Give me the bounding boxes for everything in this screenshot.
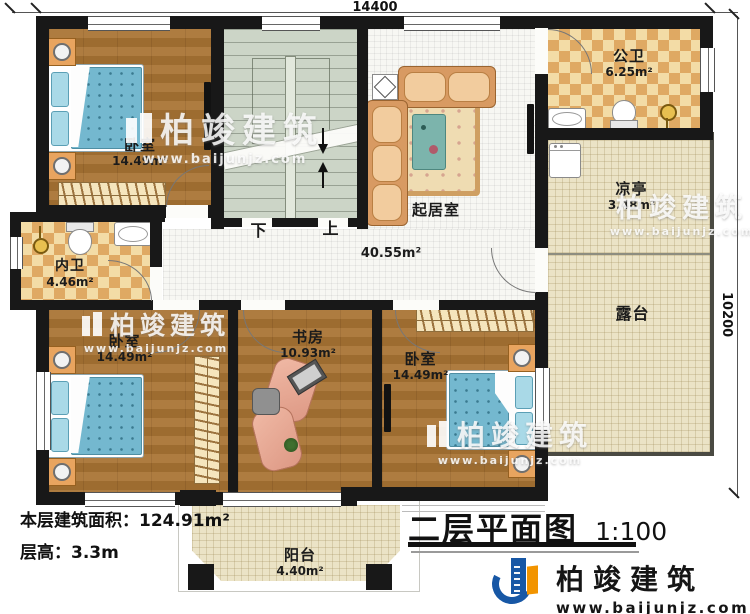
room-name: 卧室 [90,136,190,154]
wall [211,16,224,229]
balcony-pillar [180,490,216,506]
balcony-pillar [188,564,214,590]
brand-logo-icon [492,556,544,608]
room-name: 卧室 [72,332,177,350]
washer-panel [550,150,580,151]
floor-plan: 卧室 14.49m² 内卫 4.46m² 卧室 14.49m² 书房 10.93… [0,0,750,614]
room-label-pavilion: 凉亭 3.48m² [584,180,679,212]
wall [36,300,535,310]
bed [46,374,144,458]
dimension-tick [728,8,739,19]
room-label-balcony: 阳台 4.40m² [245,546,355,578]
sink-basin [118,226,148,242]
pillow [515,376,533,409]
nightstand [508,450,536,478]
hallway [163,229,535,300]
plant [284,438,298,452]
sink-basin [552,112,582,126]
door-opening [535,248,548,292]
room-name: 内卫 [28,258,112,275]
window [85,492,175,507]
room-area: 4.40m² [245,564,355,578]
room-area-living: 40.55m² [352,246,430,262]
stair-label-up: 上 [318,219,344,238]
floor-height-label: 层高： [20,543,71,563]
sofa-cushion [372,145,402,182]
balcony-pillar [341,490,357,506]
table-flowers [429,145,438,154]
pillow [51,381,69,415]
dimension-line-right [737,16,738,498]
wall [228,300,238,492]
shower-head [660,104,677,121]
floor-area-value: 124.91m² [139,511,230,531]
wall [535,128,713,140]
room-area: 14.49m² [368,368,473,382]
room-area: 14.49m² [72,350,177,364]
stair-arrow-up [322,172,324,188]
dimension-width: 14400 [340,0,410,15]
room-area: 40.55m² [352,246,430,262]
window [10,237,23,269]
shower-head [33,238,49,254]
stair-up-text: 上 [318,219,344,238]
door-opening [241,300,285,310]
lamp-shade [374,76,397,99]
room-name: 露台 [590,304,675,323]
office-chair [252,388,280,415]
terrace-parapet [710,132,714,456]
window [88,16,170,31]
tv [204,82,211,150]
door-opening [393,300,439,310]
wall [535,140,548,248]
wall [36,16,49,218]
room-label-bedroom-tl: 卧室 14.49m² [90,136,190,168]
room-name: 卧室 [368,350,473,368]
sink [114,222,152,246]
balcony-pillar [366,564,392,590]
corner-lamp [372,74,398,100]
tv [384,384,391,432]
door-opening [150,267,162,300]
room-area: 10.93m² [258,346,358,360]
dimension-tick [4,2,15,13]
pillow [51,72,69,107]
window [404,16,500,31]
room-name: 起居室 [395,201,477,219]
balcony-sliding-door [223,492,341,507]
room-name: 阳台 [245,546,355,564]
window [535,368,550,430]
nightstand [508,344,536,372]
room-label-public-bath: 公卫 6.25m² [584,47,674,79]
floor-area-line: 本层建筑面积：124.91m² [20,506,230,531]
stair-label-down: 下 [246,221,272,240]
wall [341,487,541,501]
logo-building-blue [511,558,526,594]
stair-arrow-down [322,128,324,144]
window [36,372,51,450]
sofa-back [398,66,496,108]
brand-name: 柏竣建筑 [556,558,749,598]
washer-knob [554,145,557,148]
room-area: 4.46m² [28,275,112,289]
door-opening [153,300,199,310]
floor-height-line: 层高：3.3m [20,538,119,563]
toilet [68,229,92,255]
room-label-bedroom-bl: 卧室 14.49m² [72,332,177,364]
floor-height-value: 3.3m [71,543,119,563]
wall [150,222,162,267]
dimension-height: 10200 [719,292,734,337]
sofa-cushion [448,72,490,102]
pillow [515,412,533,445]
brand-url: www.baijunjz.com [556,599,749,614]
sofa-cushion [404,72,446,102]
stair-down-text: 下 [246,221,272,240]
pavilion-terrace-divider [548,253,710,255]
room-area: 3.48m² [584,198,679,212]
nightstand [48,458,76,486]
floor-area-label: 本层建筑面积： [20,511,139,531]
washing-machine [549,143,581,178]
brand-name-block: 柏竣建筑 www.baijunjz.com [556,558,749,614]
room-name: 凉亭 [584,180,679,198]
wardrobe [194,356,220,484]
coffee-table [412,114,446,170]
sink [548,108,586,130]
logo-building-orange [527,565,538,594]
room-name: 书房 [258,328,358,346]
stair-arrow-up-head [318,162,328,172]
pillow [51,418,69,452]
sofa-cushion [372,106,402,143]
shower-stem [666,118,668,128]
wall [357,16,368,229]
window [262,16,320,31]
washer-knob [560,145,563,148]
stair-arrow-down-head [318,144,328,154]
tv [527,104,534,154]
room-label-study: 书房 10.93m² [258,328,358,360]
room-area: 6.25m² [584,65,674,79]
room-label-inner-bath: 内卫 4.46m² [28,258,112,289]
pillow [51,111,69,146]
nightstand [48,38,76,66]
title-underline-thin [411,551,639,553]
nightstand [48,152,76,180]
wall [372,300,382,492]
door-opening [535,28,548,74]
room-label-bedroom-br: 卧室 14.49m² [368,350,473,382]
window [700,48,715,92]
room-area: 14.49m² [90,154,190,168]
room-name: 公卫 [584,47,674,65]
table-decor [421,125,426,130]
room-label-terrace: 露台 [590,304,675,323]
terrace-parapet [541,452,714,456]
room-terrace [548,255,710,452]
title-underline [408,542,636,547]
shower-stem [39,226,41,238]
room-label-living: 起居室 [395,201,477,219]
